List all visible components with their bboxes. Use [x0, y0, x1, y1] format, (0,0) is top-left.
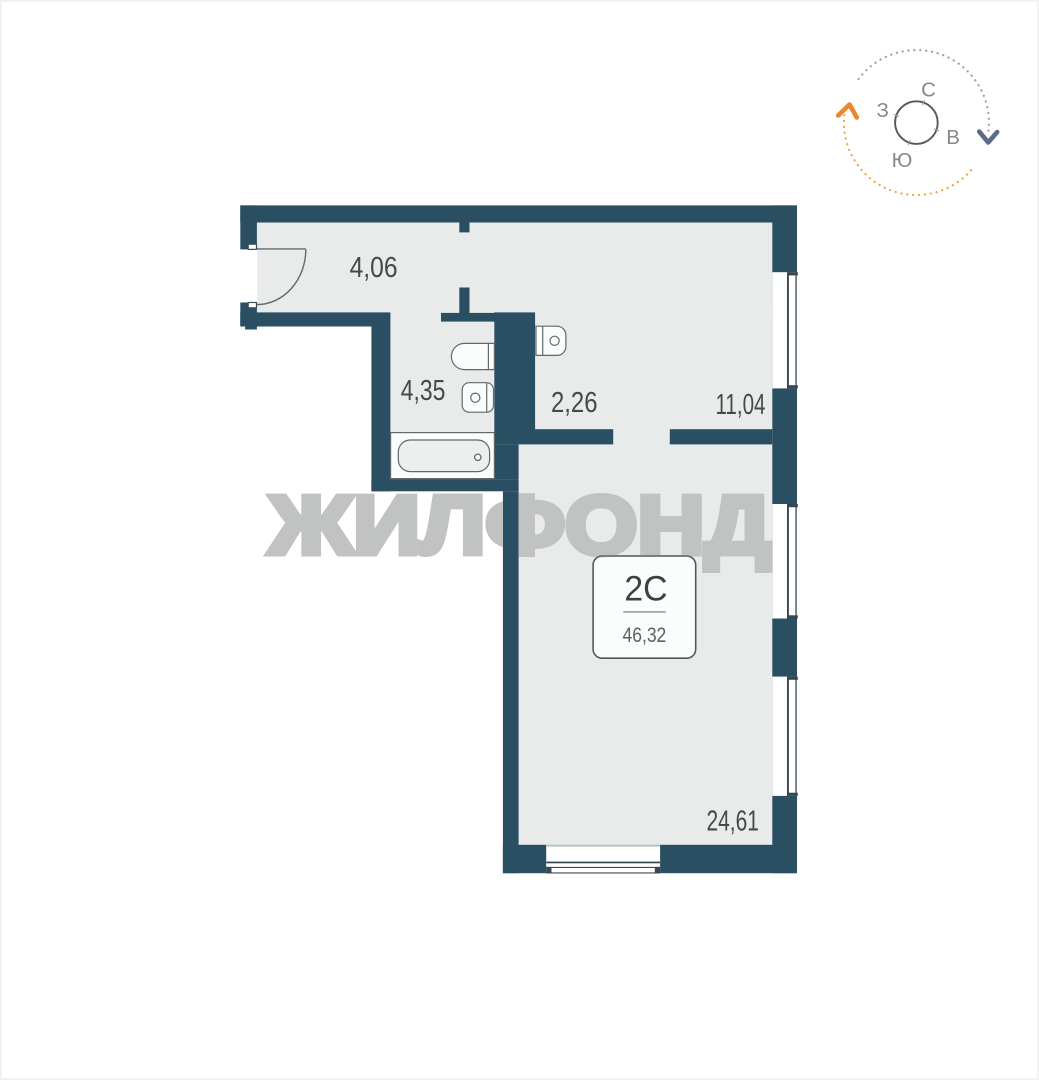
svg-text:ЖИЛФОНД: ЖИЛФОНД	[268, 479, 771, 572]
svg-text:С: С	[921, 78, 936, 101]
svg-text:2C: 2C	[624, 570, 667, 609]
svg-text:4,06: 4,06	[350, 252, 398, 284]
svg-text:В: В	[946, 126, 960, 149]
svg-text:2,26: 2,26	[551, 387, 598, 419]
svg-text:11,04: 11,04	[716, 389, 766, 421]
svg-text:24,61: 24,61	[707, 806, 759, 838]
svg-text:46,32: 46,32	[623, 624, 667, 647]
svg-text:З: З	[877, 99, 889, 122]
svg-text:Ю: Ю	[892, 149, 913, 172]
svg-text:4,35: 4,35	[401, 375, 446, 407]
